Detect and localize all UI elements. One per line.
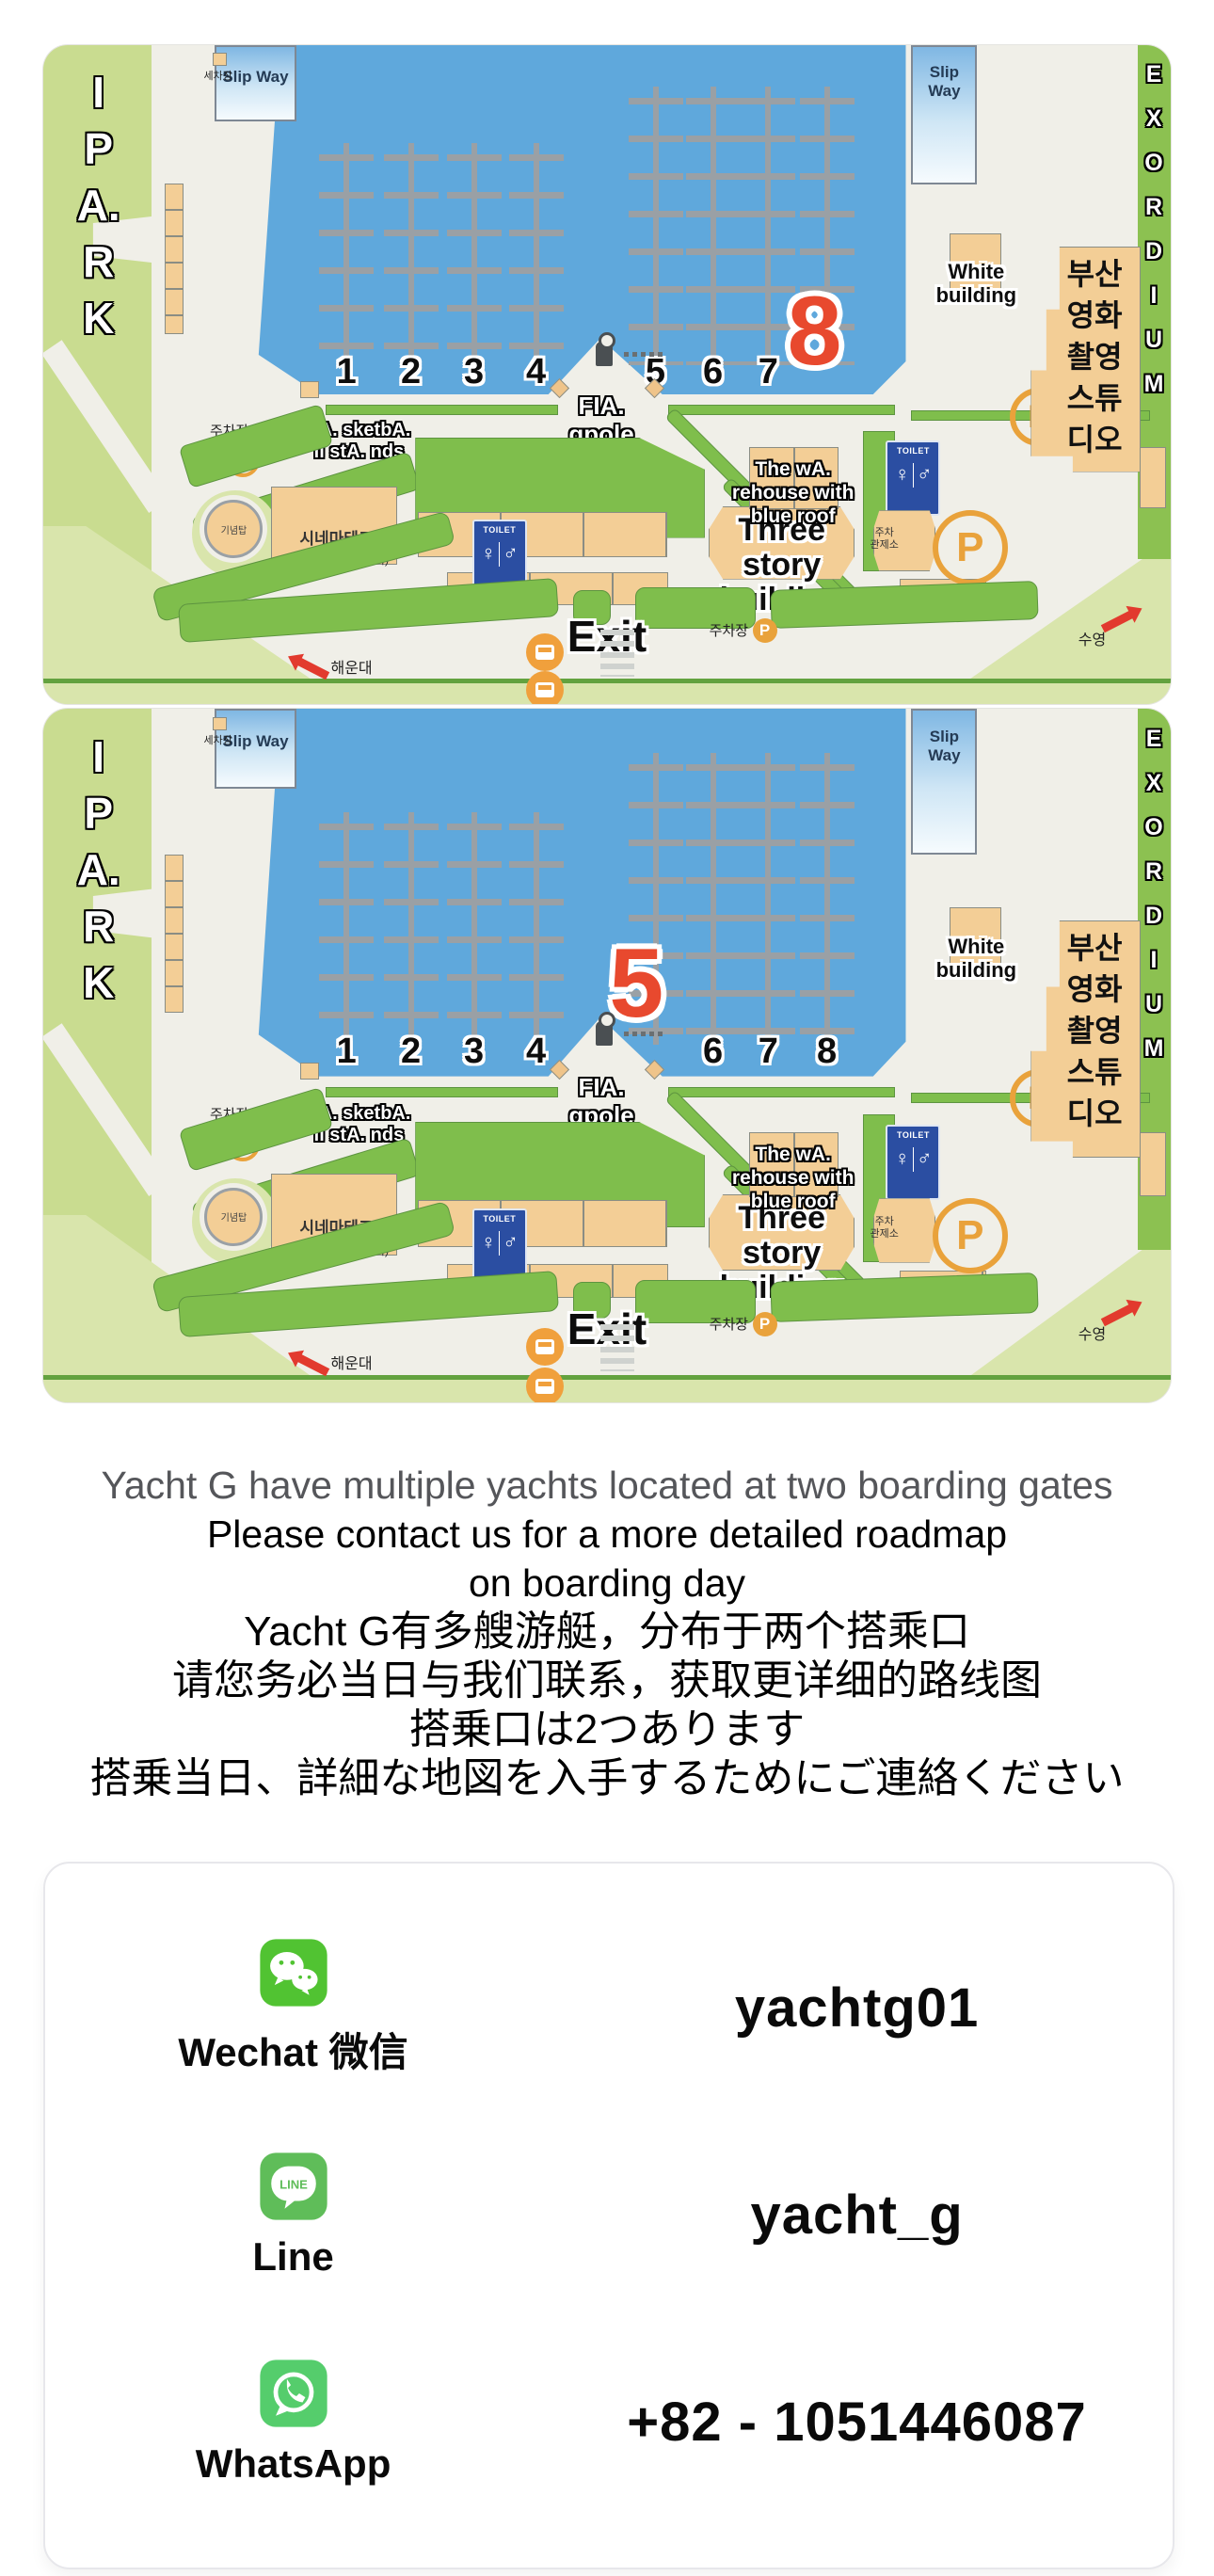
- waterfront-strip: [326, 1087, 559, 1097]
- contact-row-whatsapp: WhatsApp +82 - 1051446087: [45, 2323, 1173, 2520]
- haeundae-label: 해운대: [330, 1351, 372, 1373]
- dock-number: 1: [319, 352, 374, 392]
- bottom-shore-strip: [43, 679, 1171, 704]
- wechat-id: yachtg01: [541, 1976, 1173, 2040]
- road-median: [770, 581, 1038, 628]
- left-berth-column: [165, 855, 184, 1013]
- notice-line: on boarding day: [0, 1559, 1214, 1608]
- bus-stop-icon: [526, 671, 564, 704]
- line-icon: LINE: [258, 2151, 329, 2227]
- warehouse-label: The wA.rehouse withblue roof: [720, 1143, 867, 1213]
- dock-number: 6: [686, 1032, 741, 1072]
- boarding-notice: Yacht G have multiple yachts located at …: [0, 1461, 1214, 1803]
- restroom-icon: ♀♂: [887, 456, 938, 493]
- dock-number: 2: [384, 352, 439, 392]
- restroom-icon: ♀♂: [474, 535, 525, 572]
- slip-way-left: Slip Way: [215, 709, 296, 789]
- highlighted-gate-number: 5: [609, 935, 663, 1032]
- restroom-icon: ♀♂: [887, 1140, 938, 1177]
- dock-8: [800, 764, 855, 1045]
- waterfront-strip: [668, 405, 896, 415]
- parking-icon: P: [753, 1312, 777, 1336]
- toilet-sign: TOILET ♀♂: [886, 440, 940, 516]
- contact-row-line: LINE Line yacht_g: [45, 2116, 1173, 2313]
- dock-number: 6: [686, 352, 741, 392]
- dock-3: [447, 154, 502, 365]
- parking-icon: P: [753, 618, 777, 643]
- dock-6: [686, 98, 741, 365]
- monument: 기념탑: [204, 1188, 263, 1246]
- road-median: [770, 1272, 1038, 1321]
- fia-gpole-label: FIA.gpole: [534, 1073, 669, 1129]
- car-wash-label: 세차장: [190, 732, 247, 747]
- statue-dots: [624, 352, 665, 357]
- dock-7: [741, 764, 795, 1045]
- dock-number: 1: [319, 1032, 374, 1072]
- right-edge-building: [1140, 447, 1166, 508]
- notice-line: 搭乗口は2つあります: [0, 1705, 1214, 1754]
- toilet-sign: TOILET ♀♂: [886, 1125, 940, 1200]
- exordium-sign: EX OR DI UM: [1139, 717, 1169, 1071]
- flagpole-statue-icon: [596, 342, 613, 366]
- svg-text:LINE: LINE: [280, 2177, 308, 2191]
- building-row: [418, 512, 668, 557]
- notice-line: Please contact us for a more detailed ro…: [0, 1510, 1214, 1559]
- car-wash-building: [213, 53, 227, 66]
- green-area: [179, 1087, 333, 1172]
- right-edge-building: [1140, 1132, 1166, 1196]
- dock-2: [384, 824, 439, 1046]
- white-building-label: Whitebuilding: [917, 935, 1035, 982]
- ipark-sign: IP A.R K: [68, 728, 129, 1011]
- dock-number: 3: [447, 1032, 502, 1072]
- ipark-sign: I P A. R K: [68, 64, 129, 346]
- notice-line: 请您务必当日与我们联系，获取更详细的路线图: [0, 1656, 1214, 1705]
- statue-dots: [624, 1032, 665, 1036]
- contact-card: Wechat 微信 yachtg01 LINE Line yacht_g Wha…: [43, 1862, 1174, 2569]
- slip-way-right: Slip Way: [911, 45, 977, 184]
- crosswalk: [600, 630, 634, 677]
- exordium-sign: EX OR DI UM: [1139, 53, 1169, 407]
- dock-5: [629, 98, 683, 365]
- parking-control-label: 주차관제소: [862, 1216, 907, 1240]
- contact-row-wechat: Wechat 微信 yachtg01: [45, 1909, 1173, 2106]
- suyeong-label: 수영: [1078, 627, 1106, 649]
- parking-icon: P: [933, 1198, 1008, 1273]
- waterfront-strip: [326, 405, 559, 415]
- dock-1: [319, 824, 374, 1046]
- restroom-icon: ♀♂: [474, 1224, 525, 1261]
- suyeong-label: 수영: [1078, 1321, 1106, 1344]
- green-area: [179, 403, 333, 488]
- wechat-icon: [258, 1937, 329, 2013]
- haeundae-label: 해운대: [330, 655, 372, 678]
- parking-icon: P: [933, 510, 1008, 585]
- bus-stop-icon: [526, 633, 564, 671]
- white-building-label: Whitebuilding: [917, 260, 1035, 307]
- whatsapp-label: WhatsApp: [196, 2441, 391, 2487]
- dock-4: [509, 824, 564, 1046]
- car-wash-building: [213, 717, 227, 730]
- bus-stop-icon: [526, 1368, 564, 1402]
- film-studio-label: 부산영화촬영 스튜디오: [1052, 253, 1137, 460]
- ticket-booth: [300, 1063, 319, 1080]
- toilet-sign: TOILET ♀♂: [472, 1208, 527, 1284]
- car-wash-label: 세차장: [190, 68, 247, 83]
- whatsapp-number: +82 - 1051446087: [541, 2391, 1173, 2454]
- marina-map-gate-5: IP A.R K EX OR DI UM Slip Way Slip Way 세…: [43, 709, 1171, 1402]
- film-studio-label: 부산영화촬영 스튜디오: [1052, 927, 1137, 1134]
- dock-number: 7: [741, 1032, 795, 1072]
- waterfront-strip: [668, 1087, 896, 1097]
- bottom-shore-strip: [43, 1375, 1171, 1402]
- ticket-booth: [300, 381, 319, 398]
- building-row: [418, 1200, 668, 1248]
- whatsapp-icon: [258, 2358, 329, 2434]
- wechat-label: Wechat 微信: [178, 2021, 407, 2078]
- slip-way-right: Slip Way: [911, 709, 977, 855]
- dock-number: 3: [447, 352, 502, 392]
- highlighted-gate-number: 8: [788, 282, 842, 380]
- notice-line: Yacht G有多艘游艇，分布于两个搭乘口: [0, 1608, 1214, 1656]
- dock-number: 2: [384, 1032, 439, 1072]
- marina-map-gate-8: I P A. R K EX OR DI UM Slip Way Slip Way…: [43, 45, 1171, 704]
- dock-1: [319, 154, 374, 365]
- dock-number: 8: [800, 1032, 855, 1072]
- flagpole-statue-icon: [596, 1021, 613, 1046]
- warehouse-label: The wA.rehouse withblue roof: [720, 457, 867, 528]
- dock-2: [384, 154, 439, 365]
- notice-line: Yacht G have multiple yachts located at …: [0, 1461, 1214, 1510]
- dock-3: [447, 824, 502, 1046]
- dock-6: [686, 764, 741, 1045]
- line-label: Line: [252, 2234, 333, 2280]
- line-id: yacht_g: [541, 2184, 1173, 2247]
- bus-stop-icon: [526, 1328, 564, 1366]
- crosswalk: [600, 1324, 634, 1371]
- left-berth-column: [165, 184, 184, 334]
- notice-line: 搭乗当日、詳細な地図を入手するためにご連絡ください: [0, 1754, 1214, 1803]
- parking-control-label: 주차관제소: [862, 527, 907, 552]
- slip-way-left: Slip Way: [215, 45, 296, 121]
- dock-4: [509, 154, 564, 365]
